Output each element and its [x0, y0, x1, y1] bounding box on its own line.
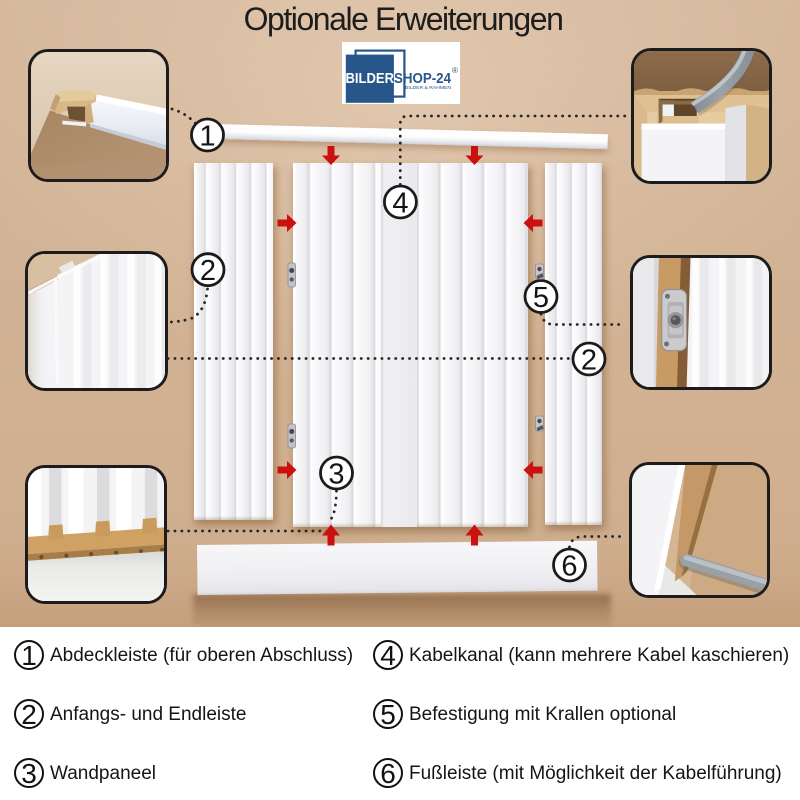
- svg-text:6: 6: [561, 551, 577, 583]
- svg-text:2: 2: [200, 255, 216, 287]
- svg-text:5: 5: [533, 282, 549, 314]
- svg-text:4: 4: [392, 188, 408, 220]
- svg-text:3: 3: [328, 459, 344, 491]
- svg-text:1: 1: [199, 121, 215, 153]
- svg-text:2: 2: [581, 345, 597, 377]
